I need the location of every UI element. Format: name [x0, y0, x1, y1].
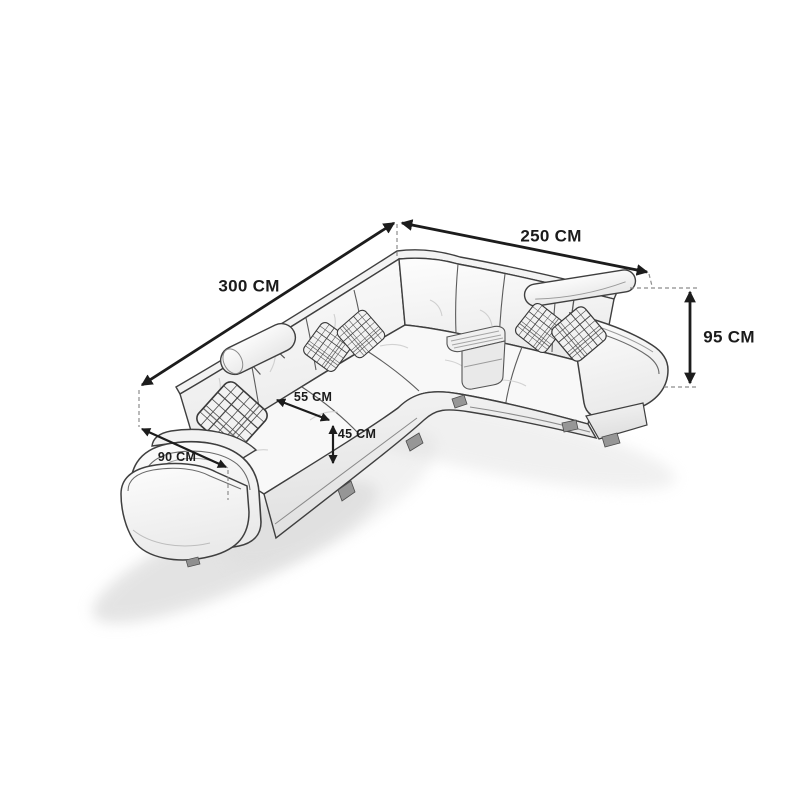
- dimension-label-300cm: 300 CM: [218, 278, 279, 295]
- dimension-label-90cm: 90 CM: [158, 451, 196, 464]
- dimension-label-95cm: 95 CM: [703, 329, 755, 346]
- corner-sofa-illustration: [0, 0, 800, 800]
- dimension-label-55cm: 55 CM: [294, 391, 332, 404]
- dimension-label-45cm: 45 CM: [338, 428, 376, 441]
- dimension-label-250cm: 250 CM: [520, 228, 581, 245]
- dimension-diagram: 250 CM 300 CM 95 CM 55 CM 45 CM 90 CM: [0, 0, 800, 800]
